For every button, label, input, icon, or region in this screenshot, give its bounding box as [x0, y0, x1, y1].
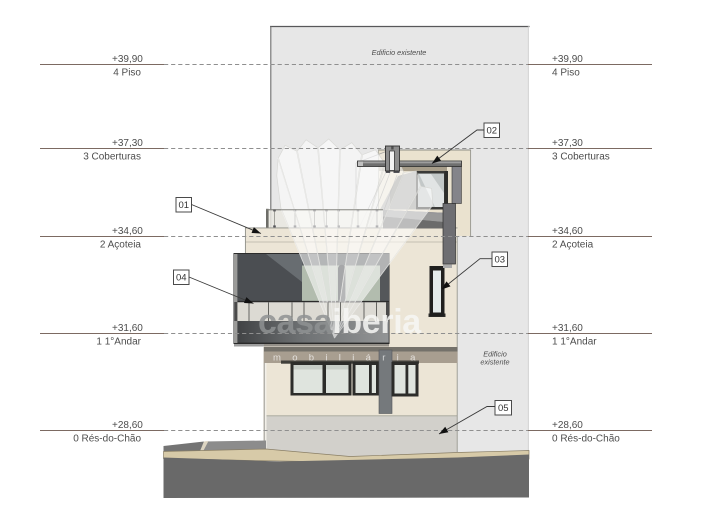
svg-text:3 Coberturas: 3 Coberturas [552, 152, 610, 163]
svg-text:1 1°Andar: 1 1°Andar [552, 337, 597, 348]
svg-text:02: 02 [486, 126, 497, 137]
svg-text:+28,60: +28,60 [552, 420, 583, 431]
svg-text:01: 01 [178, 200, 189, 211]
svg-text:4 Piso: 4 Piso [113, 68, 141, 79]
svg-text:0 Rés-do-Chão: 0 Rés-do-Chão [73, 434, 141, 445]
svg-text:4 Piso: 4 Piso [552, 68, 580, 79]
svg-text:04: 04 [176, 273, 187, 284]
svg-text:+37,30: +37,30 [552, 138, 583, 149]
svg-text:0 Rés-do-Chão: 0 Rés-do-Chão [552, 434, 620, 445]
svg-text:3 Coberturas: 3 Coberturas [83, 152, 141, 163]
svg-text:05: 05 [498, 403, 509, 414]
svg-text:03: 03 [494, 255, 505, 266]
svg-text:1 1°Andar: 1 1°Andar [96, 337, 141, 348]
svg-text:+34,60: +34,60 [552, 226, 583, 237]
svg-text:+34,60: +34,60 [112, 226, 143, 237]
svg-text:+39,90: +39,90 [552, 54, 583, 65]
svg-text:2 Açoteia: 2 Açoteia [552, 240, 594, 251]
svg-text:+37,30: +37,30 [112, 138, 143, 149]
svg-text:+31,60: +31,60 [112, 323, 143, 334]
svg-text:2 Açoteia: 2 Açoteia [100, 240, 142, 251]
svg-text:+39,90: +39,90 [112, 54, 143, 65]
svg-text:+28,60: +28,60 [112, 420, 143, 431]
svg-text:existente: existente [480, 358, 509, 367]
svg-text:mobiliária: mobiliária [273, 353, 427, 364]
svg-text:Edificio existente: Edificio existente [372, 48, 427, 57]
svg-text:casaiberia: casaiberia [258, 303, 422, 341]
svg-text:+31,60: +31,60 [552, 323, 583, 334]
